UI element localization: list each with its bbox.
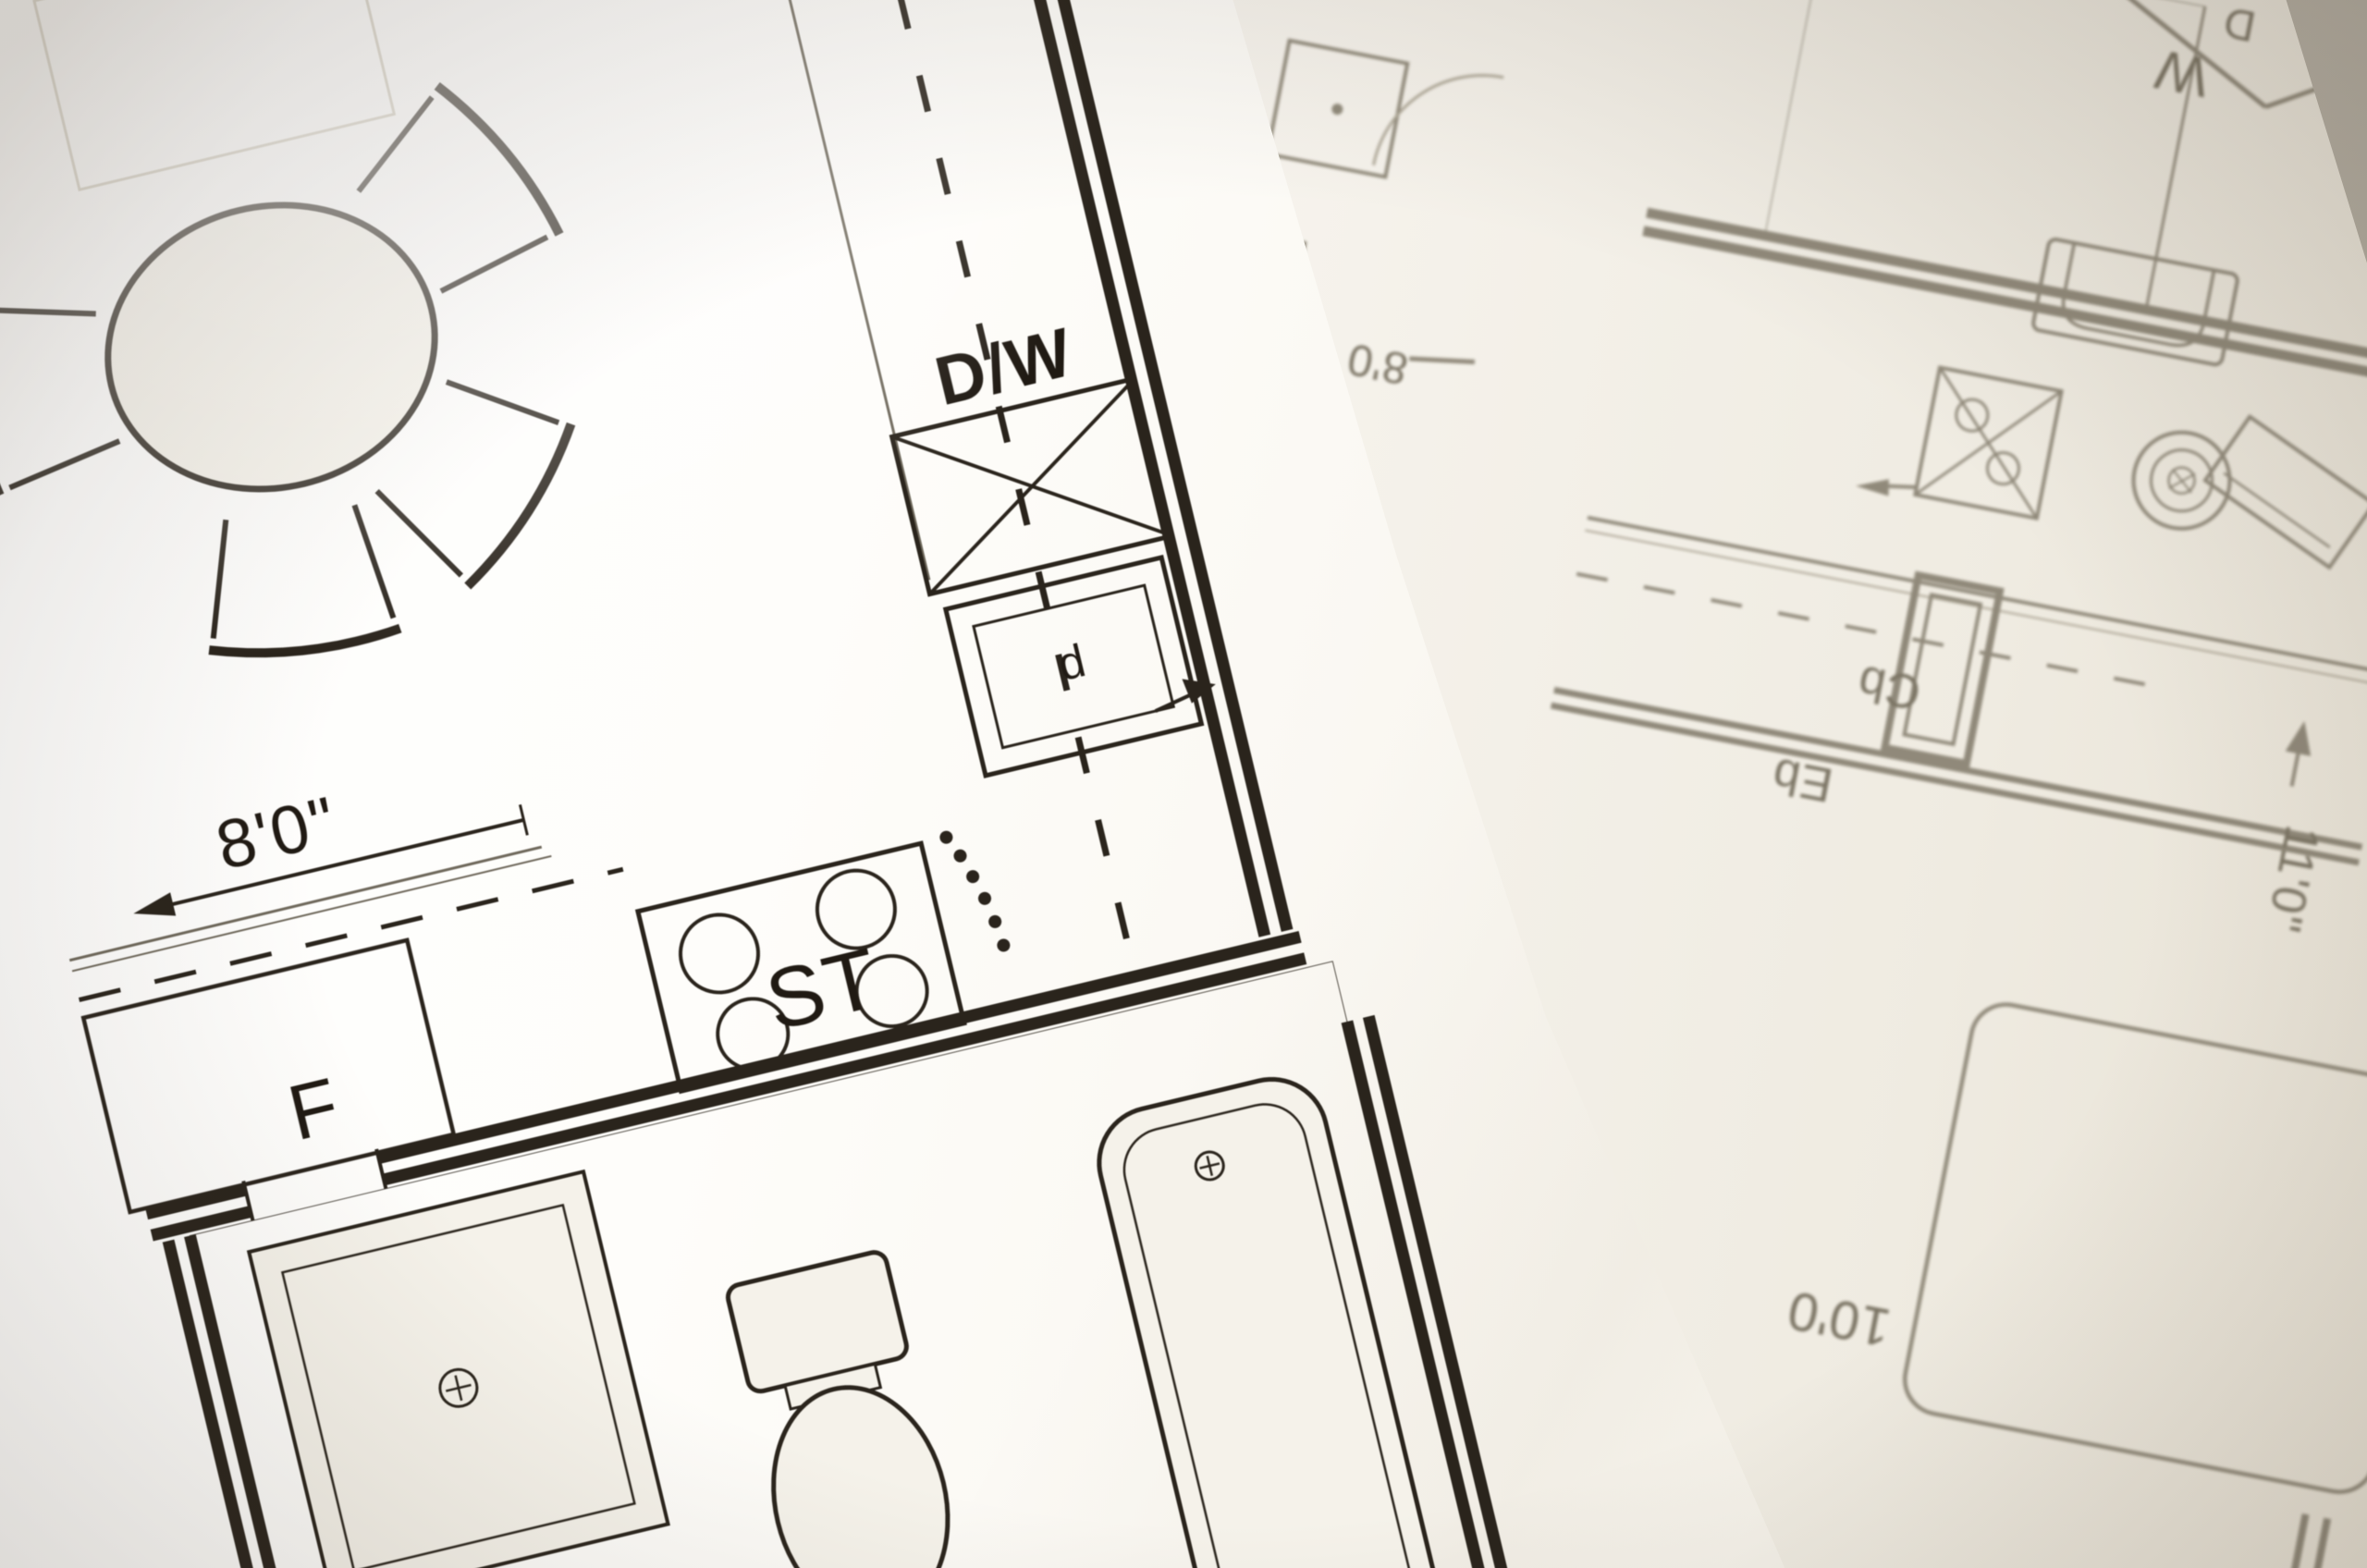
closet-label: Cb <box>1853 655 1925 719</box>
sink-cabinet-label: d <box>1053 634 1092 691</box>
dim-10ft-label: 10'0 <box>1783 1280 1895 1358</box>
sink-x-box-icon <box>1855 356 2061 524</box>
washer-label: W <box>2150 38 2214 109</box>
dim-11ft-label: 11'0" <box>2256 821 2329 937</box>
dishwasher-label: D/W <box>928 313 1081 421</box>
shower <box>249 1171 668 1568</box>
armchair-icon <box>2032 239 2238 366</box>
wall-stub <box>2281 1514 2327 1568</box>
door-hinge-dots <box>938 823 1012 961</box>
dimension-arrow-icon <box>1855 473 1892 496</box>
blueprint-photo: W D <box>0 0 2367 1568</box>
upper-cabinet-dashed-line <box>80 869 623 999</box>
dim-8ft-label: 8'0 <box>1343 334 1411 394</box>
toilet-icon <box>722 1249 971 1568</box>
dimension-arrow-icon <box>2286 718 2317 756</box>
door-swing-arc <box>1374 56 1504 187</box>
exterior-wall <box>1643 213 2367 387</box>
panel-label: Eb <box>1767 748 1836 812</box>
dimension-arrow-icon <box>130 892 176 925</box>
chair-icon <box>0 283 125 497</box>
fridge-label: F <box>280 1060 349 1157</box>
dryer-label: D <box>2219 0 2260 51</box>
stove-label: ST <box>757 931 889 1049</box>
chair-icon <box>195 502 402 662</box>
stove-burners-icon <box>672 907 766 1000</box>
dining-table-icon <box>79 172 464 522</box>
closet-band: Cb Eb <box>1541 511 2367 913</box>
bed-outline <box>1899 998 2367 1498</box>
dining-set <box>0 59 653 725</box>
concentric-rings-icon <box>2126 424 2238 537</box>
